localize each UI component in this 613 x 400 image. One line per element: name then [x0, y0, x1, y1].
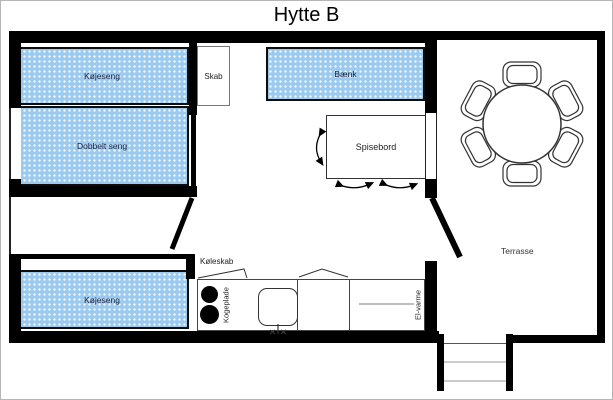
- hotplate-burner-icon: [200, 305, 219, 324]
- fridge-label: Køleskab: [200, 258, 233, 266]
- wall-bottom-bedroom: [9, 254, 191, 259]
- wall-cabin-right-lower: [425, 261, 437, 333]
- window-left-lower: [9, 193, 21, 256]
- counter-divider-2: [349, 279, 350, 331]
- double-bed-label: Dobbelt seng: [77, 141, 127, 151]
- bunk-bed-bottom: Køjeseng: [15, 270, 189, 329]
- wall-cabin-left-lower: [9, 256, 21, 343]
- wall-terrace-bottom: [513, 335, 597, 343]
- terrace-chair-icon: [546, 78, 586, 123]
- terrace-steps-rail-left: [437, 334, 444, 391]
- dining-table-label: Spisebord: [356, 142, 397, 152]
- closet-label: Skab: [204, 72, 222, 81]
- wall-cabin-bottom: [9, 331, 439, 343]
- fridge-leader-line: [299, 269, 348, 277]
- closet: Skab: [197, 46, 230, 106]
- terrace-chair-icon: [458, 78, 498, 123]
- bunk-bed-bottom-label: Køjeseng: [84, 295, 120, 305]
- sink: [258, 288, 298, 326]
- wall-terrace-right: [597, 31, 605, 343]
- table-swing-arrow: [340, 184, 370, 188]
- electric-heater-label: El-varme: [412, 281, 424, 329]
- terrace-chairs: [458, 62, 585, 186]
- wall-cabin-left-upper: [9, 31, 21, 108]
- wall-terrace-top: [437, 31, 605, 40]
- fridge-leader-line: [198, 269, 247, 278]
- double-bed: Dobbelt seng: [15, 106, 189, 186]
- wall-cabin-right-upper: [425, 31, 437, 113]
- terrace-chair-icon: [503, 161, 541, 186]
- wall-interior-vertical-thin: [191, 115, 196, 186]
- door-bedroom: [172, 198, 192, 249]
- hotplate-burner-icon: [201, 286, 218, 303]
- bench: Bænk: [266, 47, 425, 101]
- terrace-steps-rail-right: [506, 334, 513, 391]
- table-swing-arrow: [384, 184, 414, 188]
- terrace-steps: [444, 344, 506, 382]
- floorplan-hytte-b: Hytte B Køjeseng Dobbelt seng Bænk Køjes…: [0, 0, 613, 400]
- terrace-chair-icon: [546, 125, 586, 170]
- dining-table: Spisebord: [326, 115, 426, 179]
- wall-cabin-right-middle: [425, 179, 437, 198]
- wall-bedroom-divider: [9, 186, 197, 197]
- terrace-label: Terrasse: [501, 247, 534, 256]
- door-terrace: [432, 198, 460, 257]
- bench-label: Bænk: [334, 69, 356, 79]
- page-title: Hytte B: [1, 4, 612, 27]
- terrace-chair-icon: [503, 62, 541, 87]
- window-left-upper: [9, 108, 21, 179]
- bunk-bed-top-label: Køjeseng: [84, 71, 120, 81]
- terrace-table-icon: [483, 85, 561, 163]
- bunk-bed-top: Køjeseng: [15, 47, 189, 105]
- table-swing-arrow: [317, 133, 322, 162]
- terrace-chair-icon: [458, 125, 498, 170]
- window-right: [425, 113, 437, 179]
- wall-cabin-top: [9, 31, 437, 43]
- wall-interior-vertical-upper: [189, 43, 197, 115]
- wall-interior-vertical-stub: [186, 254, 195, 279]
- hotplate-label: Kogeplade: [220, 281, 232, 329]
